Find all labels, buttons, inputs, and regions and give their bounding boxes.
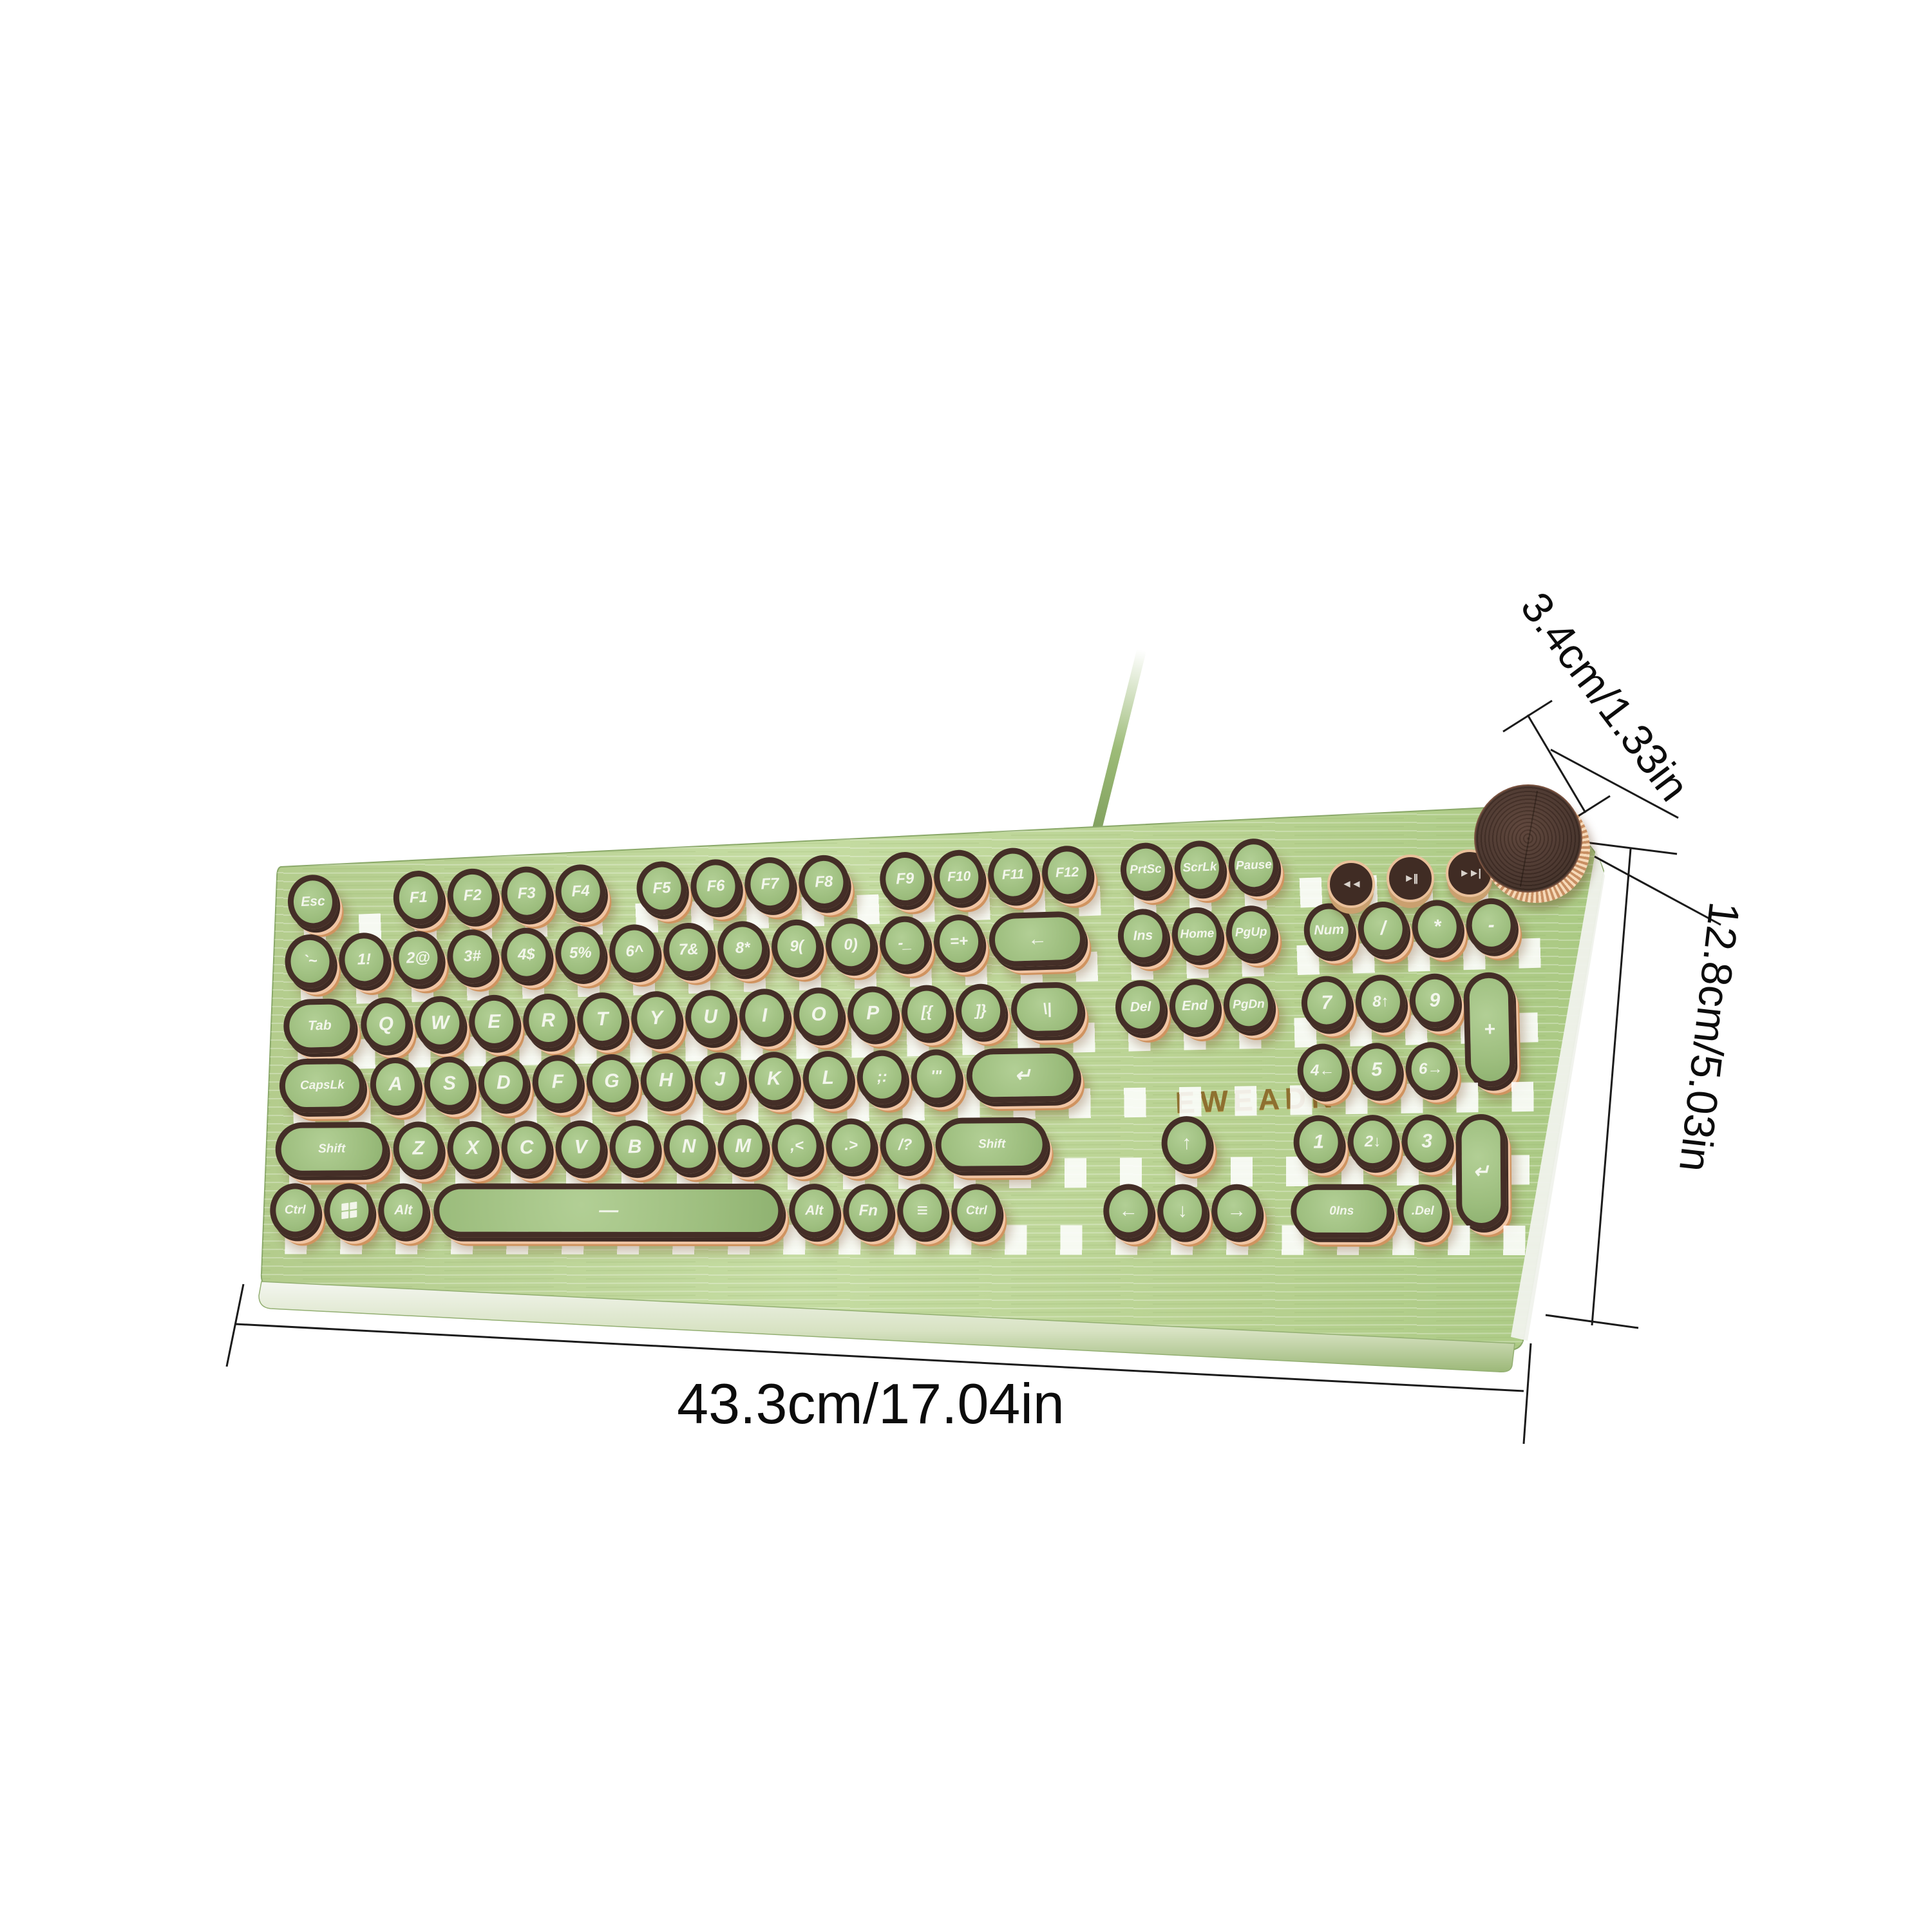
- key-numpad-9: 9: [1409, 973, 1461, 1028]
- key-u: U: [685, 989, 736, 1045]
- key-v: V: [555, 1120, 606, 1175]
- key-numpad-5: 5: [1351, 1043, 1402, 1097]
- key-left-ctrl: Ctrl: [270, 1183, 320, 1237]
- key-numpad-6: 6→: [1405, 1042, 1456, 1097]
- key-enter: ↵: [966, 1047, 1079, 1103]
- key-num: Num: [1303, 902, 1356, 958]
- key-j: J: [694, 1052, 745, 1107]
- key-i: I: [739, 988, 790, 1043]
- key-symbol: \|: [1010, 981, 1084, 1037]
- key-arrow-right: →: [1211, 1184, 1262, 1238]
- key-symbol: .>: [826, 1119, 876, 1173]
- key-m: M: [717, 1119, 768, 1174]
- key-pgdn: PgDn: [1223, 977, 1274, 1032]
- key-f3: F3: [500, 866, 553, 922]
- key-x: X: [447, 1121, 498, 1176]
- key-f10: F10: [933, 849, 985, 905]
- key-symbol: ,<: [772, 1119, 822, 1173]
- key-esc: Esc: [287, 874, 339, 930]
- key-fn: Fn: [843, 1184, 893, 1238]
- key-ins: Ins: [1117, 908, 1170, 963]
- key-row-4: ShiftZXCVBNM,<.>/?Shift↑12↓3↵: [272, 1113, 1554, 1177]
- previous-track-icon: ◄◄: [1341, 878, 1361, 891]
- key-backspace: ←: [989, 911, 1086, 968]
- key-numpad-4: 4←: [1297, 1043, 1348, 1098]
- key-pause: Pause: [1227, 838, 1280, 894]
- keyboard-width-label: 43.3cm/17.04in: [677, 1371, 1065, 1437]
- key-o: O: [793, 987, 844, 1043]
- key-s: S: [424, 1056, 475, 1111]
- key-y: Y: [630, 990, 682, 1046]
- key-0: 0): [825, 917, 877, 972]
- key-t: T: [576, 992, 628, 1047]
- key-2: 2@: [392, 931, 444, 986]
- key-prtsc: PrtSc: [1119, 842, 1171, 898]
- key-6: 6^: [609, 923, 661, 979]
- key-win: [324, 1183, 374, 1237]
- key-scrlk: ScrLk: [1173, 840, 1226, 896]
- key-symbol: ]}: [955, 983, 1007, 1039]
- key-del: Del: [1115, 980, 1166, 1035]
- key-numpad-dot-del: .Del: [1397, 1184, 1448, 1238]
- key-numpad-2: 2↓: [1347, 1115, 1398, 1170]
- key-right-alt: Alt: [789, 1184, 839, 1238]
- key-p: P: [847, 986, 898, 1041]
- key-space: —: [433, 1184, 784, 1238]
- key-f5: F5: [636, 860, 688, 916]
- knob-top-face: [1474, 784, 1582, 893]
- key-h: H: [640, 1053, 691, 1108]
- key-f8: F8: [798, 854, 850, 910]
- key-a: A: [370, 1057, 421, 1112]
- key-numpad-minus: -: [1465, 898, 1517, 953]
- key-q: Q: [360, 997, 412, 1052]
- key-row-5: CtrlAlt—AltFn≡Ctrl←↓→0Ins.Del: [268, 1183, 1549, 1238]
- key-numpad-8: 8↑: [1355, 974, 1406, 1030]
- key-5: 5%: [554, 925, 607, 981]
- key-pgup: PgUp: [1226, 905, 1278, 960]
- key-numpad-multiply: *: [1411, 899, 1463, 954]
- key-numpad-divide: /: [1357, 901, 1409, 956]
- windows-logo-icon: [341, 1202, 357, 1219]
- key-f4: F4: [554, 864, 607, 920]
- product-dimension-diagram: { "brand": "EWEADN", "dimensions": { "kn…: [0, 0, 1932, 1932]
- key-symbol: -_: [879, 916, 931, 971]
- key-left-shift: Shift: [275, 1122, 388, 1177]
- key-f7: F7: [744, 857, 796, 913]
- play-pause-button: ►||: [1387, 855, 1434, 902]
- key-symbol: [{: [901, 985, 952, 1040]
- key-arrow-left: ←: [1103, 1184, 1153, 1238]
- key-f11: F11: [987, 847, 1039, 903]
- key-f1: F1: [392, 870, 444, 926]
- key-c: C: [501, 1121, 552, 1175]
- key-k: K: [748, 1052, 799, 1106]
- key-7: 7&: [663, 922, 715, 978]
- key-end: End: [1169, 978, 1220, 1034]
- previous-track-button: ◄◄: [1327, 860, 1375, 908]
- key-numpad-7: 7: [1301, 976, 1352, 1031]
- key-capslk: CapsLk: [279, 1058, 365, 1113]
- key-symbol: `~: [284, 934, 336, 989]
- key-left-alt: Alt: [378, 1184, 428, 1238]
- key-numpad-0-ins: 0Ins: [1291, 1184, 1392, 1238]
- key-symbol: =+: [933, 914, 985, 969]
- key-f9: F9: [879, 851, 931, 907]
- key-l: L: [802, 1050, 853, 1105]
- key-f2: F2: [446, 867, 498, 923]
- key-menu: ≡: [897, 1184, 947, 1238]
- key-tab: Tab: [283, 998, 356, 1054]
- key-1: 1!: [338, 932, 390, 987]
- key-symbol: ;:: [857, 1050, 907, 1104]
- key-f12: F12: [1041, 845, 1094, 901]
- key-8: 8*: [717, 920, 769, 976]
- key-r: R: [522, 993, 574, 1048]
- key-9: 9(: [771, 919, 823, 974]
- key-f6: F6: [690, 858, 742, 914]
- volume-knob: [1474, 784, 1582, 893]
- key-n: N: [663, 1119, 714, 1174]
- key-3: 3#: [446, 929, 498, 984]
- key-d: D: [478, 1056, 529, 1110]
- keyboard-keys: EWEADN EscF1F2F3F4F5F6F7F8F9F10F11F12Prt…: [285, 820, 1582, 1294]
- key-numpad-3: 3: [1401, 1114, 1452, 1169]
- key-e: E: [468, 994, 520, 1050]
- key-w: W: [414, 996, 466, 1051]
- key-arrow-up: ↑: [1161, 1116, 1212, 1171]
- key-b: B: [609, 1120, 660, 1175]
- key-right-shift: Shift: [935, 1117, 1048, 1172]
- key-z: Z: [393, 1121, 444, 1176]
- key-right-ctrl: Ctrl: [951, 1184, 1001, 1238]
- play-pause-icon: ►||: [1404, 872, 1417, 885]
- key-symbol: /?: [880, 1118, 931, 1173]
- key-home: Home: [1171, 907, 1224, 962]
- key-symbol: '": [911, 1049, 961, 1104]
- key-f: F: [532, 1055, 583, 1110]
- key-numpad-1: 1: [1293, 1115, 1344, 1170]
- key-arrow-down: ↓: [1157, 1184, 1207, 1238]
- key-g: G: [586, 1054, 637, 1108]
- key-4: 4$: [500, 927, 553, 982]
